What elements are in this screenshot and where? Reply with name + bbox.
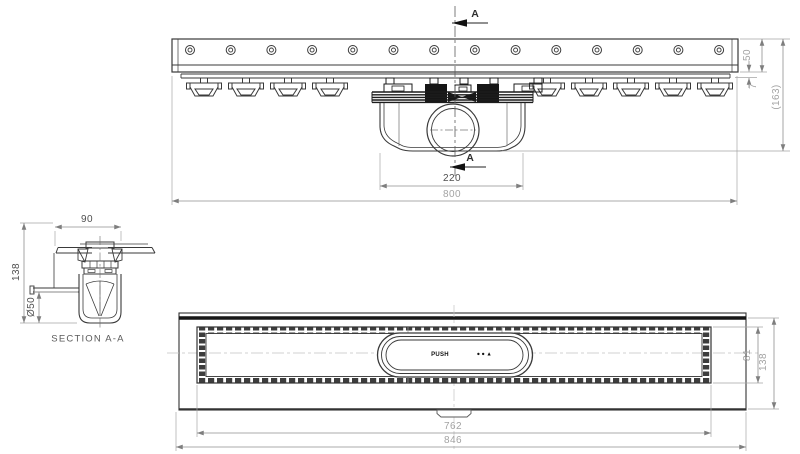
plan-view <box>167 305 779 451</box>
drawing-linework <box>0 0 800 454</box>
dim-grate-length: 762 <box>444 422 462 432</box>
section-arrow-top-label: A <box>471 9 479 20</box>
screw-holes <box>186 46 724 55</box>
top-view-dimensions <box>172 39 790 205</box>
section-body <box>30 236 155 330</box>
dim-plan-total-width: 138 <box>759 353 769 371</box>
trap-body <box>380 103 525 156</box>
top-view <box>172 6 790 205</box>
dim-section-height: 138 <box>12 263 22 281</box>
dim-section-top-width: 90 <box>81 215 93 225</box>
lower-rail <box>181 74 730 78</box>
dim-total-length: 846 <box>444 436 462 446</box>
dim-trap-width: 220 <box>443 174 461 184</box>
push-cover-plate <box>378 333 533 377</box>
drawing-canvas: A A 220 800 50 7 (163) 90 138 Ø50 SECTIO… <box>0 0 800 454</box>
section-arrow-bottom-label: A <box>466 153 474 164</box>
outlet-tab <box>437 410 471 417</box>
dim-channel-height: 50 <box>743 49 753 61</box>
section-title: SECTION A-A <box>51 334 124 344</box>
dim-pipe-diameter: Ø50 <box>27 297 37 317</box>
dim-grate-width: 81 <box>743 349 753 361</box>
siphon-flange <box>372 78 542 102</box>
dim-channel-length: 800 <box>443 190 461 200</box>
section-view <box>20 223 155 330</box>
push-plate-indicator-dots: ●●▲ <box>477 352 494 358</box>
dim-total-height: (163) <box>772 84 782 109</box>
section-arrow-top-icon <box>452 19 488 26</box>
push-plate-label: PUSH <box>431 352 449 358</box>
dim-lip-height: 7 <box>749 83 759 89</box>
